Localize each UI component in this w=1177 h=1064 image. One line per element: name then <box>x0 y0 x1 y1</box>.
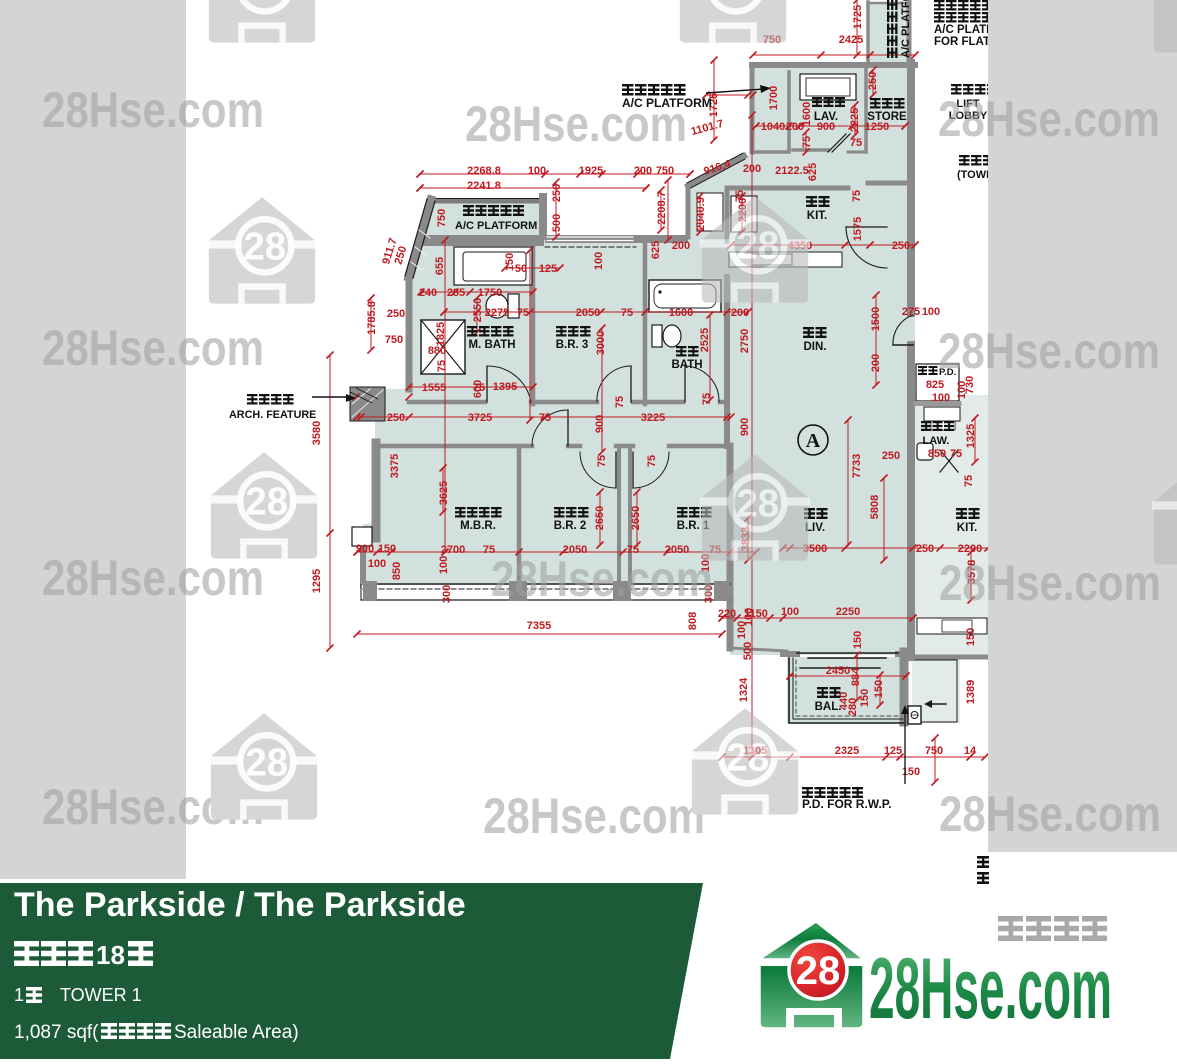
svg-text:75: 75 <box>596 455 608 467</box>
svg-text:7355: 7355 <box>527 620 551 632</box>
svg-text:1600: 1600 <box>801 102 813 126</box>
svg-text:750: 750 <box>925 745 943 757</box>
svg-text:2425: 2425 <box>839 34 863 46</box>
svg-text:150: 150 <box>859 689 871 707</box>
svg-text:KIT.: KIT. <box>807 210 827 222</box>
svg-text:250: 250 <box>551 184 563 202</box>
svg-text:150: 150 <box>378 543 396 555</box>
svg-text:655: 655 <box>434 257 446 275</box>
svg-text:500: 500 <box>742 642 754 660</box>
svg-text:750: 750 <box>656 165 674 177</box>
svg-text:880: 880 <box>428 345 446 357</box>
svg-text:150: 150 <box>873 680 885 698</box>
svg-text:100: 100 <box>438 556 450 574</box>
svg-text:1395: 1395 <box>493 381 517 393</box>
svg-text:1825: 1825 <box>435 322 447 346</box>
svg-text:750: 750 <box>385 334 403 346</box>
svg-text:1389: 1389 <box>965 680 977 704</box>
svg-text:5808: 5808 <box>869 495 881 519</box>
svg-text:28Hse.com: 28Hse.com <box>42 320 264 376</box>
svg-text:75: 75 <box>621 307 633 319</box>
svg-text:18: 18 <box>96 940 125 970</box>
svg-text:2040.9: 2040.9 <box>695 197 707 231</box>
svg-text:M. BATH: M. BATH <box>468 339 515 351</box>
svg-text:250: 250 <box>916 543 934 555</box>
svg-text:28Hse.com: 28Hse.com <box>42 82 264 138</box>
svg-text:TOWER 1: TOWER 1 <box>60 985 142 1005</box>
svg-text:2200: 2200 <box>958 543 982 555</box>
svg-text:28Hse.com: 28Hse.com <box>483 788 705 844</box>
svg-text:808: 808 <box>687 612 699 630</box>
svg-text:100: 100 <box>922 306 940 318</box>
svg-text:900: 900 <box>739 418 751 436</box>
svg-text:KIT.: KIT. <box>957 522 977 534</box>
svg-text:2550: 2550 <box>472 298 484 322</box>
svg-text:The Parkside / The Parkside: The Parkside / The Parkside <box>14 886 466 924</box>
svg-text:75: 75 <box>801 136 813 148</box>
svg-text:2450: 2450 <box>826 665 850 677</box>
svg-text:250: 250 <box>892 240 910 252</box>
svg-text:28Hse.com: 28Hse.com <box>938 91 1160 147</box>
svg-text:3580: 3580 <box>311 421 323 445</box>
svg-text:2268.8: 2268.8 <box>467 165 501 177</box>
svg-text:1295: 1295 <box>311 569 323 593</box>
svg-text:200: 200 <box>870 354 882 372</box>
svg-text:28Hse.com: 28Hse.com <box>465 96 687 152</box>
svg-text:75: 75 <box>851 190 863 202</box>
svg-text:3225: 3225 <box>641 412 665 424</box>
svg-text:220: 220 <box>718 608 736 620</box>
svg-text:1325: 1325 <box>965 424 977 448</box>
svg-text:A/C PLATFOR: A/C PLATFOR <box>900 0 912 58</box>
svg-text:1324: 1324 <box>738 677 750 702</box>
svg-text:275: 275 <box>902 306 920 318</box>
svg-text:100: 100 <box>593 252 605 270</box>
svg-text:28Hse.com: 28Hse.com <box>938 323 1160 379</box>
svg-text:75: 75 <box>436 360 448 372</box>
svg-text:A/C PLATFORM: A/C PLATFORM <box>455 220 537 232</box>
svg-text:625: 625 <box>650 241 662 259</box>
svg-text:2325: 2325 <box>835 745 859 757</box>
svg-text:P.D. FOR R.W.P.: P.D. FOR R.W.P. <box>802 797 892 811</box>
svg-text:7733: 7733 <box>851 454 863 478</box>
svg-text:28Hse.com: 28Hse.com <box>939 786 1161 842</box>
svg-text:2250: 2250 <box>836 606 860 618</box>
svg-text:75: 75 <box>517 307 529 319</box>
svg-text:100: 100 <box>743 608 755 626</box>
svg-text:75: 75 <box>963 475 975 487</box>
svg-text:150: 150 <box>965 628 977 646</box>
svg-text:75: 75 <box>950 448 962 460</box>
svg-text:1725: 1725 <box>852 5 864 29</box>
svg-text:100: 100 <box>781 606 799 618</box>
svg-text:2225: 2225 <box>849 108 861 132</box>
svg-text:2241.8: 2241.8 <box>467 180 501 192</box>
svg-text:2122.5: 2122.5 <box>775 165 809 177</box>
svg-text:100: 100 <box>368 558 386 570</box>
svg-text:250: 250 <box>882 450 900 462</box>
svg-text:200: 200 <box>731 307 749 319</box>
svg-text:75: 75 <box>473 382 485 394</box>
svg-text:1575: 1575 <box>852 217 864 241</box>
svg-text:1500: 1500 <box>870 307 882 331</box>
svg-text:884: 884 <box>850 667 862 686</box>
svg-text:75: 75 <box>734 190 746 202</box>
svg-text:300: 300 <box>441 585 453 603</box>
svg-text:500: 500 <box>551 214 563 232</box>
svg-text:BATH: BATH <box>671 359 702 371</box>
svg-text:2700: 2700 <box>441 544 465 556</box>
svg-text:B.R. 2: B.R. 2 <box>554 520 587 532</box>
svg-text:STORE: STORE <box>867 111 907 123</box>
svg-text:200: 200 <box>672 240 690 252</box>
svg-text:A: A <box>806 430 821 452</box>
svg-text:2525: 2525 <box>699 328 711 352</box>
svg-text:1040: 1040 <box>761 121 785 133</box>
svg-text:240: 240 <box>419 287 437 299</box>
svg-text:850: 850 <box>928 448 946 460</box>
svg-text:200: 200 <box>743 163 761 175</box>
svg-text:280: 280 <box>847 698 859 716</box>
svg-text:2750: 2750 <box>739 329 751 353</box>
svg-text:900: 900 <box>356 543 374 555</box>
svg-text:LAW.: LAW. <box>923 435 950 447</box>
svg-text:900: 900 <box>594 415 606 433</box>
svg-text:28Hse.com: 28Hse.com <box>939 555 1161 611</box>
svg-text:75: 75 <box>614 396 626 408</box>
svg-text:150: 150 <box>852 631 864 649</box>
svg-text:285: 285 <box>447 287 465 299</box>
svg-text:50: 50 <box>515 263 527 275</box>
svg-text:75: 75 <box>646 455 658 467</box>
svg-text:M.B.R.: M.B.R. <box>460 520 496 532</box>
svg-text:75: 75 <box>539 412 551 424</box>
svg-text:250: 250 <box>867 72 879 90</box>
svg-text:BAL.: BAL. <box>815 701 842 713</box>
svg-text:125: 125 <box>884 745 902 757</box>
svg-text:100: 100 <box>956 381 968 399</box>
svg-text:100: 100 <box>528 165 546 177</box>
svg-text:3000: 3000 <box>595 331 607 355</box>
svg-text:28: 28 <box>796 949 841 993</box>
svg-text:200: 200 <box>634 165 652 177</box>
svg-text:B.R. 3: B.R. 3 <box>556 339 589 351</box>
svg-text:750: 750 <box>436 209 448 227</box>
svg-text:2208.7: 2208.7 <box>656 191 668 225</box>
svg-text:Saleable Area): Saleable Area) <box>174 1022 299 1043</box>
svg-text:1785.8: 1785.8 <box>366 301 378 335</box>
svg-text:1700: 1700 <box>768 86 780 110</box>
svg-text:ARCH. FEATURE: ARCH. FEATURE <box>229 409 316 421</box>
svg-text:3725: 3725 <box>468 412 492 424</box>
svg-text:100: 100 <box>932 392 950 404</box>
svg-text:1600: 1600 <box>669 307 693 319</box>
svg-text:825: 825 <box>926 379 944 391</box>
svg-text:1925: 1925 <box>579 165 603 177</box>
svg-text:DIN.: DIN. <box>804 341 827 353</box>
svg-text:2650: 2650 <box>594 506 606 530</box>
svg-text:250: 250 <box>387 308 405 320</box>
svg-text:2650: 2650 <box>630 506 642 530</box>
svg-text:1,087 sqf(: 1,087 sqf( <box>14 1022 99 1043</box>
svg-text:2275: 2275 <box>485 307 509 319</box>
svg-text:125: 125 <box>539 263 557 275</box>
svg-text:75: 75 <box>701 393 713 405</box>
svg-text:75: 75 <box>850 137 862 149</box>
svg-text:28Hse.com: 28Hse.com <box>491 551 713 607</box>
svg-text:14: 14 <box>964 745 977 757</box>
svg-text:250: 250 <box>387 412 405 424</box>
svg-text:1750: 1750 <box>478 287 502 299</box>
svg-text:28Hse.com: 28Hse.com <box>869 941 1112 1037</box>
svg-text:3375: 3375 <box>389 454 401 478</box>
svg-text:3625: 3625 <box>438 481 450 505</box>
svg-text:1: 1 <box>14 985 24 1005</box>
svg-text:850: 850 <box>391 562 403 580</box>
svg-text:2050: 2050 <box>576 307 600 319</box>
svg-text:LAV.: LAV. <box>814 111 838 123</box>
svg-text:1555: 1555 <box>422 382 446 394</box>
